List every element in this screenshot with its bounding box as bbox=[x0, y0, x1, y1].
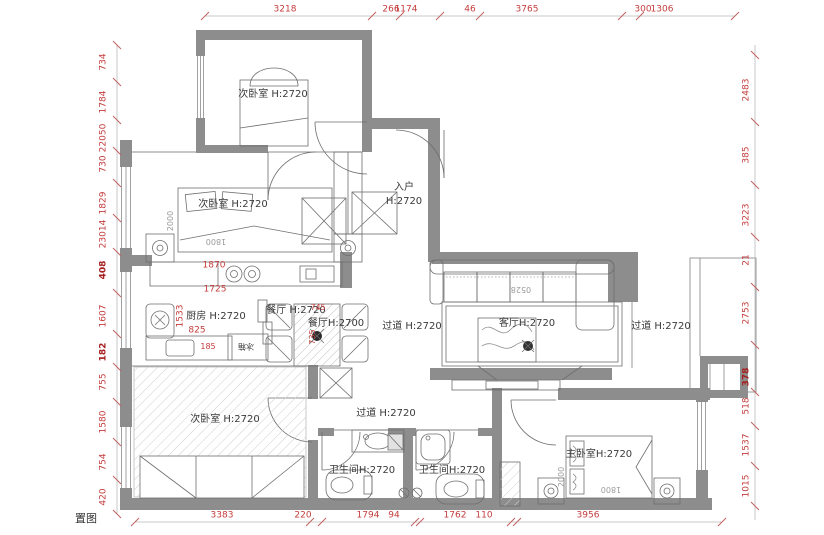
dim-left-7: 1607 bbox=[100, 305, 109, 328]
bedroom-bottom-label: 次卧室 H:2720 bbox=[190, 415, 260, 425]
bedroom-top-label: 次卧室 H:2720 bbox=[238, 90, 308, 100]
floor-plan-drawing bbox=[0, 0, 824, 535]
dim-left-9: 755 bbox=[100, 373, 109, 390]
bath-left-label: 卫生间H:2720 bbox=[329, 466, 395, 476]
dim-inner-1533: 1533 bbox=[177, 305, 186, 328]
dim-right-0: 2483 bbox=[743, 79, 752, 102]
dim-bottom-3: 94 bbox=[388, 512, 399, 521]
living-label: 客厅H:2720 bbox=[499, 319, 555, 329]
dim-inner-735: 735 bbox=[309, 329, 317, 344]
dim-top-5: 300 bbox=[634, 6, 651, 15]
dim-top-4: 3765 bbox=[516, 6, 539, 15]
dim-top-3: 46 bbox=[464, 6, 475, 15]
dim-inner-825: 825 bbox=[188, 327, 205, 336]
dim-left-0: 734 bbox=[100, 53, 109, 70]
dim-left-11: 754 bbox=[100, 453, 109, 470]
dim-right-7: 1537 bbox=[743, 434, 752, 457]
master-label: 主卧室H:2720 bbox=[566, 450, 632, 460]
entry-label-line2: H:2720 bbox=[386, 197, 422, 207]
dim-inner-745: 745 bbox=[310, 304, 325, 312]
dim-bottom-1: 220 bbox=[294, 512, 311, 521]
dim-right-2: 3223 bbox=[743, 204, 752, 227]
dim-top-2: 1174 bbox=[395, 6, 418, 15]
kitchen-label: 厨房 H:2720 bbox=[186, 312, 246, 322]
bed-master-length: 2000 bbox=[558, 467, 566, 487]
dim-inner-1870: 1870 bbox=[203, 262, 226, 271]
bed-master-width: 1800 bbox=[601, 485, 621, 493]
dim-right-1: 385 bbox=[743, 146, 752, 163]
dim-left-8: 182 bbox=[100, 343, 109, 362]
hall-mid-label: 过道 H:2720 bbox=[382, 322, 442, 332]
entry-label-line1: 入户 bbox=[394, 183, 414, 193]
dim-left-1: 1784 bbox=[100, 91, 109, 114]
sheet-title: 置图 bbox=[75, 513, 97, 524]
dim-top-6: 1306 bbox=[651, 6, 674, 15]
dim-left-4: 1829 bbox=[100, 192, 109, 215]
dim-bottom-4: 1762 bbox=[444, 512, 467, 521]
dim-left-6: 408 bbox=[100, 261, 109, 280]
bed-top bbox=[240, 68, 308, 146]
bath-right-label: 卫生间H:2720 bbox=[419, 466, 485, 476]
dim-left-3: 730 bbox=[100, 155, 109, 172]
dim-right-6: 518 bbox=[743, 397, 752, 414]
bed-mid-length: 2000 bbox=[167, 211, 175, 231]
dim-right-4: 2753 bbox=[743, 302, 752, 325]
dining-label-b: 餐厅H:2700 bbox=[308, 319, 364, 329]
dim-left-10: 1580 bbox=[100, 411, 109, 434]
dim-top-0: 3218 bbox=[274, 6, 297, 15]
dim-bottom-5: 110 bbox=[475, 512, 492, 521]
floor-plan: 次卧室 H:2720 次卧室 H:2720 厨房 H:2720 餐厅 H:272… bbox=[0, 0, 824, 535]
dim-right-3: 21 bbox=[743, 254, 752, 265]
dim-bottom-2: 1794 bbox=[357, 512, 380, 521]
dim-left-12: 420 bbox=[100, 488, 109, 505]
dim-left-5: 23014 bbox=[100, 220, 109, 249]
dim-left-2: 22050 bbox=[100, 124, 109, 153]
tatami-room bbox=[134, 367, 306, 498]
dim-bottom-6: 3956 bbox=[577, 512, 600, 521]
fridge-label: 冰箱 bbox=[238, 342, 254, 350]
dim-bottom-0: 3383 bbox=[211, 512, 234, 521]
hall-right-label: 过道 H:2720 bbox=[631, 322, 691, 332]
bed-mid-width: 1800 bbox=[206, 237, 226, 245]
hall-low-label: 过道 H:2720 bbox=[356, 409, 416, 419]
dim-inner-1725: 1725 bbox=[204, 286, 227, 295]
bedroom-mid-label: 次卧室 H:2720 bbox=[198, 200, 268, 210]
dim-inner-185: 185 bbox=[200, 343, 215, 351]
sofa-code-label: 0528 bbox=[511, 285, 531, 293]
dim-right-8: 1015 bbox=[743, 475, 752, 498]
dim-right-5: 378 bbox=[743, 368, 752, 387]
